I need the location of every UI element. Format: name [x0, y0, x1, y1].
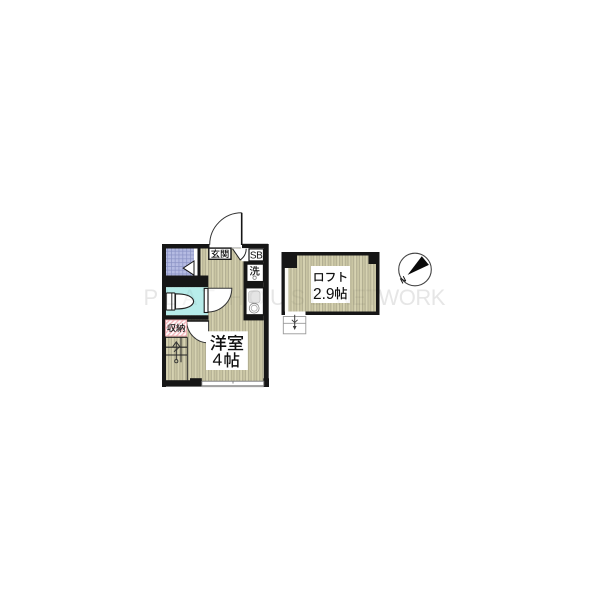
svg-text:4: 4 [213, 350, 223, 370]
svg-text:SB: SB [250, 251, 263, 262]
